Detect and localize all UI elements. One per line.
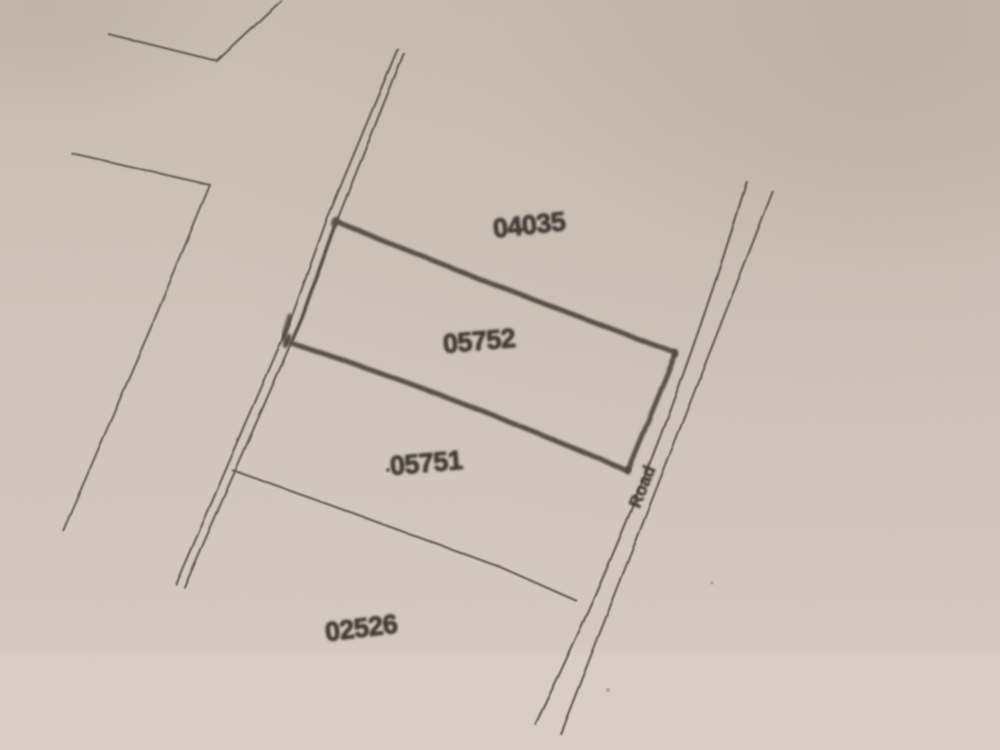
svg-text:05751: 05751 bbox=[389, 445, 464, 481]
svg-text:05752: 05752 bbox=[442, 323, 517, 359]
